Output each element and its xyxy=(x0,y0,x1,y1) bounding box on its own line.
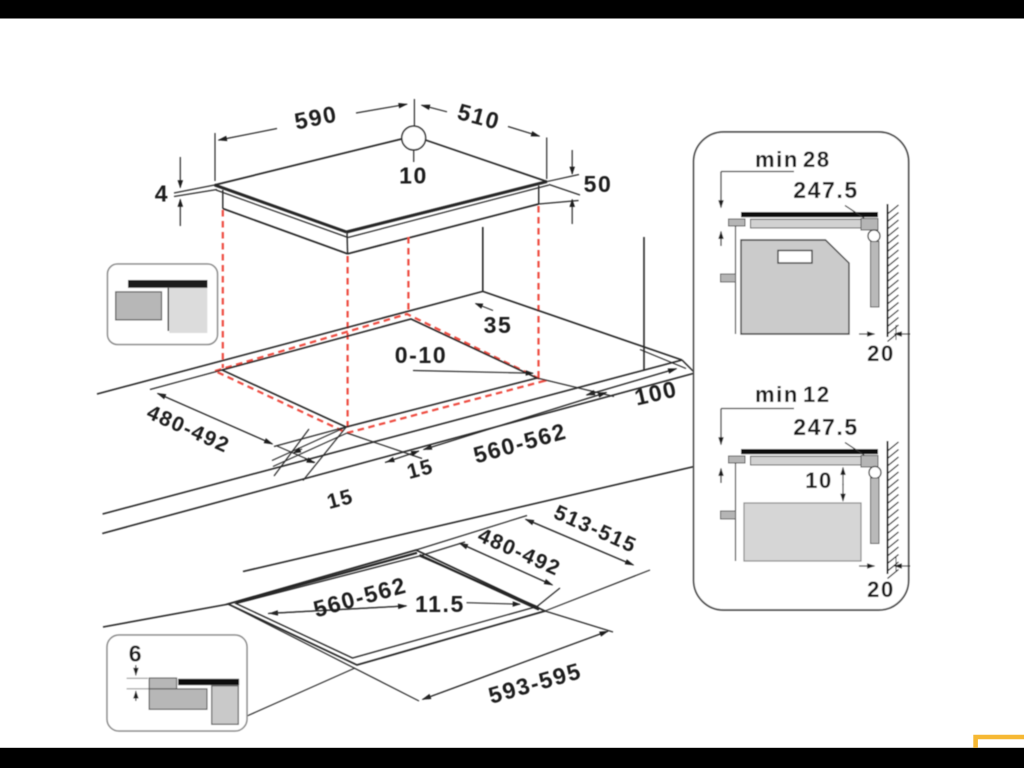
svg-text:6: 6 xyxy=(129,641,143,667)
svg-text:min: min xyxy=(755,147,799,172)
svg-text:10: 10 xyxy=(399,163,428,189)
svg-text:28: 28 xyxy=(803,147,831,172)
svg-text:4: 4 xyxy=(155,181,169,207)
svg-text:0-10: 0-10 xyxy=(395,342,447,368)
svg-text:247.5: 247.5 xyxy=(793,177,859,203)
svg-text:11.5: 11.5 xyxy=(415,591,465,617)
svg-text:20: 20 xyxy=(867,577,895,602)
svg-text:10: 10 xyxy=(805,468,833,493)
svg-text:35: 35 xyxy=(484,312,513,338)
svg-text:min: min xyxy=(755,382,799,407)
svg-text:50: 50 xyxy=(584,171,613,197)
svg-text:20: 20 xyxy=(867,341,895,366)
svg-text:247.5: 247.5 xyxy=(793,414,859,440)
svg-text:12: 12 xyxy=(803,382,831,407)
